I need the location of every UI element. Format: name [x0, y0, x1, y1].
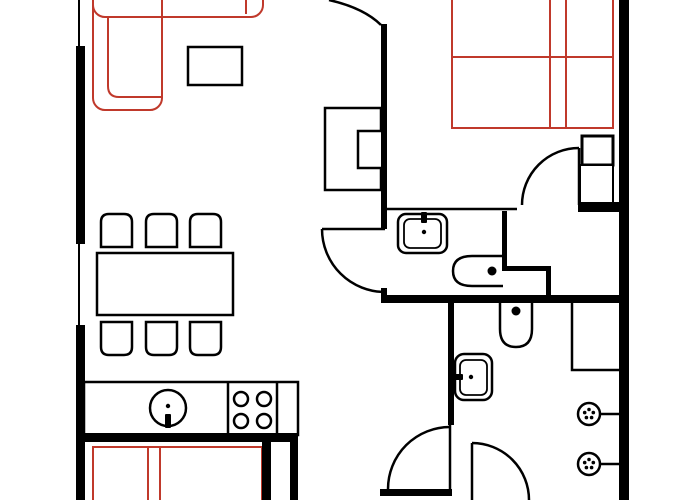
radiator-valve-1: [578, 403, 600, 425]
wall-vestibule-horizontal: [502, 266, 551, 271]
radiator-valve-2-dot-c: [590, 466, 594, 470]
wall-bedroom-bottom: [578, 202, 628, 212]
closet-column: [580, 165, 613, 204]
radiator-valve-2-dot-b: [592, 461, 596, 465]
wall-kitchen-bottom: [78, 433, 298, 442]
wall-hallway-left: [290, 442, 298, 500]
nightstand: [582, 136, 613, 165]
bathroom-toilet-dot: [488, 267, 497, 276]
wall-unit: [325, 108, 381, 190]
door-top-arc: [329, 0, 381, 25]
radiator-valve-1-dot-a: [587, 408, 591, 412]
bathroom-sink-dot: [422, 230, 426, 234]
radiator-valve-2-dot-e: [583, 461, 587, 465]
wall-vestibule-vertical-2: [546, 271, 551, 297]
wall-bedroom2-right: [262, 442, 271, 500]
radiator-valve-1-dot-c: [590, 416, 594, 420]
radiator-valve-1-dot-d: [585, 416, 589, 420]
door-bedroom-arc: [522, 148, 579, 205]
chair-bottom-3: [190, 322, 221, 355]
wall-hallway-bottom: [380, 489, 452, 496]
radiator-valve-2-dot-a: [587, 458, 591, 462]
stove-burner-4: [257, 414, 271, 428]
kitchen-sink-faucet: [165, 414, 171, 428]
wc-toilet-dot: [512, 307, 521, 316]
chair-bottom-2: [146, 322, 177, 355]
radiator-valve-2-dot-d: [585, 466, 589, 470]
chair-bottom-1: [101, 322, 132, 355]
wall-vestibule-vertical-1: [502, 211, 507, 271]
radiator-valve-2: [578, 453, 600, 475]
chair-top-3: [190, 214, 221, 247]
dining-table: [97, 253, 233, 315]
chair-top-2: [146, 214, 177, 247]
kitchen-sink-dot: [166, 404, 170, 408]
door-bathroom-arc: [322, 229, 385, 292]
radiator-valve-1-dot-e: [583, 411, 587, 415]
wall-left-upper: [76, 46, 85, 244]
bathroom-sink-faucet: [421, 212, 427, 223]
stove-burner-2: [257, 392, 271, 406]
sofa-seat-inner-line: [108, 16, 161, 97]
door-wc-arc: [472, 443, 529, 500]
second-bed-outline: [93, 447, 262, 500]
wc-shower-closet: [572, 303, 619, 370]
stove-burner-1: [234, 392, 248, 406]
double-bed-outline: [452, 0, 613, 128]
radiator-valve-1-dot-b: [592, 411, 596, 415]
sofa-long-section: [93, 0, 263, 17]
door-hallway-arc: [388, 427, 450, 489]
wc-sink-dot: [469, 375, 473, 379]
wall-wc-left: [448, 303, 454, 425]
wall-left-lower: [76, 325, 85, 500]
wc-sink-faucet: [453, 374, 463, 380]
wall-main-horizontal: [381, 295, 629, 303]
stove-burner-3: [234, 414, 248, 428]
chair-top-1: [101, 214, 132, 247]
floor-plan-svg: [0, 0, 700, 500]
coffee-table: [188, 47, 242, 85]
floor-plan: [0, 0, 700, 500]
wall-right: [619, 0, 629, 500]
wall-living-bedroom: [381, 24, 387, 229]
